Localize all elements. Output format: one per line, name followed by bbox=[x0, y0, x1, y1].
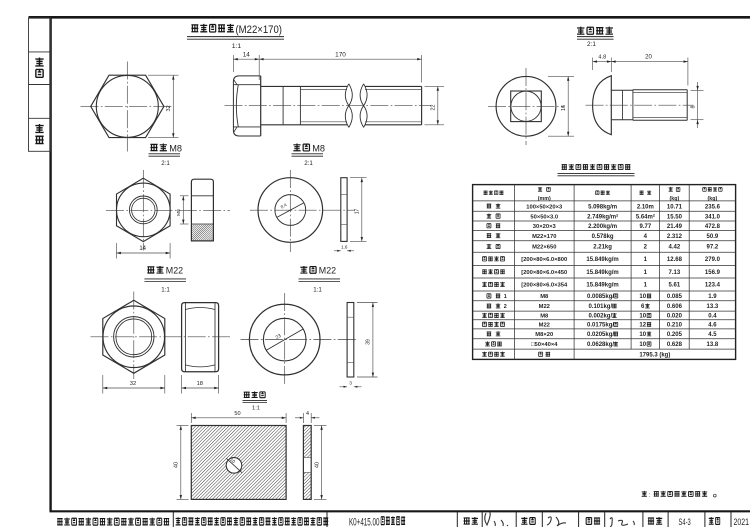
svg-text:M8: M8 bbox=[540, 314, 549, 320]
svg-text:0.0205kg/: 0.0205kg/ bbox=[587, 332, 614, 338]
svg-text:13.8: 13.8 bbox=[707, 342, 719, 348]
svg-text:8.4: 8.4 bbox=[280, 202, 288, 210]
svg-text:2:1: 2:1 bbox=[587, 41, 596, 48]
svg-text:9.77: 9.77 bbox=[640, 224, 652, 230]
svg-text:1:1: 1:1 bbox=[313, 286, 322, 293]
svg-text:0.0085kg/: 0.0085kg/ bbox=[587, 294, 614, 300]
svg-text:2.312: 2.312 bbox=[667, 234, 683, 240]
svg-text:M22×170: M22×170 bbox=[532, 234, 556, 240]
svg-text:0.578kg: 0.578kg bbox=[592, 234, 614, 240]
svg-text:[200×80×6.0×800: [200×80×6.0×800 bbox=[521, 257, 567, 263]
svg-text:2:1: 2:1 bbox=[304, 160, 313, 167]
svg-text:[200×80×6.0×354: [200×80×6.0×354 bbox=[521, 283, 568, 289]
svg-text:2.10m: 2.10m bbox=[637, 204, 654, 210]
svg-text:4.5: 4.5 bbox=[708, 332, 717, 338]
svg-text:17: 17 bbox=[355, 209, 361, 215]
svg-text:4.6: 4.6 bbox=[708, 323, 717, 329]
svg-text:2: 2 bbox=[644, 245, 648, 251]
svg-text:20: 20 bbox=[645, 55, 652, 61]
svg-text:M22: M22 bbox=[539, 304, 550, 310]
svg-text:□50×40×4: □50×40×4 bbox=[531, 342, 558, 348]
svg-text:1.6: 1.6 bbox=[341, 244, 348, 249]
svg-text:235.6: 235.6 bbox=[705, 204, 721, 210]
svg-text:2.21kg: 2.21kg bbox=[593, 245, 612, 251]
svg-text:4: 4 bbox=[306, 411, 309, 417]
svg-text:0.4: 0.4 bbox=[708, 314, 717, 320]
svg-text:123.4: 123.4 bbox=[705, 283, 721, 289]
svg-text:S4-3: S4-3 bbox=[679, 517, 691, 527]
svg-text:1: 1 bbox=[644, 257, 648, 263]
svg-text:2.749kg/m²: 2.749kg/m² bbox=[587, 213, 618, 220]
svg-text:97.2: 97.2 bbox=[707, 245, 719, 251]
svg-text:156.9: 156.9 bbox=[705, 270, 721, 276]
svg-text:M22: M22 bbox=[319, 266, 336, 276]
svg-text:M22: M22 bbox=[539, 323, 550, 329]
svg-text:3: 3 bbox=[349, 380, 352, 386]
svg-text:1: 1 bbox=[504, 294, 507, 300]
svg-text:2021: 2021 bbox=[734, 517, 750, 527]
svg-text:0.002kg/: 0.002kg/ bbox=[588, 314, 612, 320]
svg-text:1:1: 1:1 bbox=[161, 286, 170, 293]
svg-text:1:1: 1:1 bbox=[232, 43, 242, 50]
svg-text:1:1: 1:1 bbox=[252, 405, 260, 411]
svg-text:0.628: 0.628 bbox=[667, 342, 683, 348]
svg-text:0.0175kg/: 0.0175kg/ bbox=[587, 323, 614, 329]
svg-text:40: 40 bbox=[174, 462, 180, 468]
svg-text:10: 10 bbox=[639, 294, 646, 300]
svg-text:(kg): (kg) bbox=[708, 196, 718, 202]
svg-text:50.9: 50.9 bbox=[707, 234, 719, 240]
svg-text:15.849kg/m: 15.849kg/m bbox=[586, 283, 618, 289]
svg-text:10: 10 bbox=[639, 314, 646, 320]
svg-text:14: 14 bbox=[139, 246, 146, 252]
svg-text:(mm): (mm) bbox=[538, 196, 551, 202]
svg-text:14: 14 bbox=[243, 51, 251, 58]
svg-text:M22: M22 bbox=[166, 266, 183, 276]
svg-text:4: 4 bbox=[644, 234, 648, 240]
svg-text:15.849kg/m: 15.849kg/m bbox=[586, 270, 618, 276]
svg-text:5.61: 5.61 bbox=[669, 283, 681, 289]
svg-text:472.8: 472.8 bbox=[705, 224, 721, 230]
svg-text:18: 18 bbox=[197, 381, 203, 387]
svg-text:0.606: 0.606 bbox=[667, 304, 683, 310]
svg-text:1.9: 1.9 bbox=[708, 294, 717, 300]
svg-text:170: 170 bbox=[335, 51, 346, 58]
svg-text::: : bbox=[649, 492, 651, 499]
svg-text:32: 32 bbox=[166, 105, 172, 111]
svg-text:K0+415.00: K0+415.00 bbox=[349, 516, 380, 527]
svg-text:12.68: 12.68 bbox=[667, 257, 683, 263]
svg-text:M8: M8 bbox=[540, 294, 549, 300]
svg-text:0.210: 0.210 bbox=[667, 323, 683, 329]
svg-text:15.849kg/m: 15.849kg/m bbox=[586, 257, 618, 263]
svg-text:0.020: 0.020 bbox=[667, 314, 683, 320]
svg-text:1: 1 bbox=[644, 270, 648, 276]
svg-text:39: 39 bbox=[366, 339, 372, 345]
svg-text:M8: M8 bbox=[169, 143, 182, 153]
svg-text:279.0: 279.0 bbox=[705, 257, 721, 263]
svg-text:0.205: 0.205 bbox=[667, 332, 683, 338]
svg-text:10: 10 bbox=[639, 342, 646, 348]
svg-text:(kg): (kg) bbox=[670, 196, 680, 202]
svg-text:50×50×3.0: 50×50×3.0 bbox=[530, 214, 558, 220]
svg-text:4.8: 4.8 bbox=[598, 55, 606, 61]
svg-text:M8×20: M8×20 bbox=[535, 332, 553, 338]
svg-text:5.64m²: 5.64m² bbox=[636, 213, 655, 220]
svg-text:2:1: 2:1 bbox=[161, 160, 170, 167]
svg-text:8: 8 bbox=[690, 106, 696, 109]
svg-text:22: 22 bbox=[431, 105, 437, 111]
svg-text:0.101kg/: 0.101kg/ bbox=[588, 304, 612, 310]
svg-text:30×20×3: 30×20×3 bbox=[533, 224, 557, 230]
svg-text:0.0628kg/: 0.0628kg/ bbox=[587, 342, 614, 348]
svg-text:0.085: 0.085 bbox=[667, 294, 683, 300]
svg-text:12: 12 bbox=[639, 323, 646, 329]
svg-text:16: 16 bbox=[561, 105, 567, 111]
svg-text:6: 6 bbox=[641, 304, 645, 310]
svg-text:15.50: 15.50 bbox=[667, 214, 683, 220]
svg-text:7.13: 7.13 bbox=[669, 270, 681, 276]
svg-text:M8: M8 bbox=[176, 209, 182, 216]
svg-text:341.0: 341.0 bbox=[705, 214, 721, 220]
svg-text:4.42: 4.42 bbox=[669, 245, 681, 251]
svg-text:2.200kg/m: 2.200kg/m bbox=[588, 224, 617, 230]
svg-text:M8: M8 bbox=[312, 143, 325, 153]
svg-text:10.71: 10.71 bbox=[667, 204, 683, 210]
svg-text:M22×650: M22×650 bbox=[532, 245, 556, 251]
svg-text:13.3: 13.3 bbox=[707, 304, 719, 310]
svg-text:1: 1 bbox=[644, 283, 648, 289]
svg-text:50: 50 bbox=[234, 411, 240, 417]
svg-text:[200×80×6.0×450: [200×80×6.0×450 bbox=[521, 270, 567, 276]
svg-text:32: 32 bbox=[130, 381, 136, 387]
svg-text:21.49: 21.49 bbox=[667, 224, 683, 230]
svg-text:2: 2 bbox=[504, 304, 507, 310]
svg-text:10: 10 bbox=[639, 332, 646, 338]
svg-text:(M22×170): (M22×170) bbox=[236, 24, 283, 36]
svg-text:5.098kg/m: 5.098kg/m bbox=[588, 204, 617, 210]
svg-text:100×50×20×3: 100×50×20×3 bbox=[526, 204, 563, 210]
svg-text:1795.3 (kg): 1795.3 (kg) bbox=[639, 353, 670, 359]
svg-text:40: 40 bbox=[314, 462, 320, 468]
